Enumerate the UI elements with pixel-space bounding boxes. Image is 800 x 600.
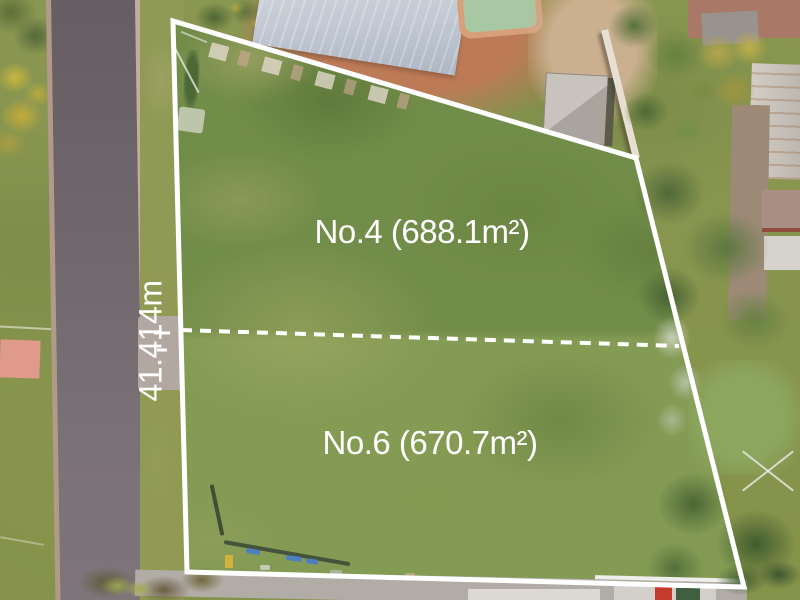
aerial-photo: No.4 (688.1m²) No.6 (670.7m²) 41.414m bbox=[0, 0, 800, 600]
lot-4-area-label: No.4 (688.1m²) bbox=[315, 213, 530, 251]
lot-6-area-label: No.6 (670.7m²) bbox=[323, 424, 538, 462]
survey-overlay bbox=[0, 0, 800, 600]
lot-divider-dashed-line bbox=[181, 330, 679, 346]
frontage-dimension-label: 41.414m bbox=[133, 280, 170, 401]
lot-boundary-outline bbox=[173, 21, 744, 587]
